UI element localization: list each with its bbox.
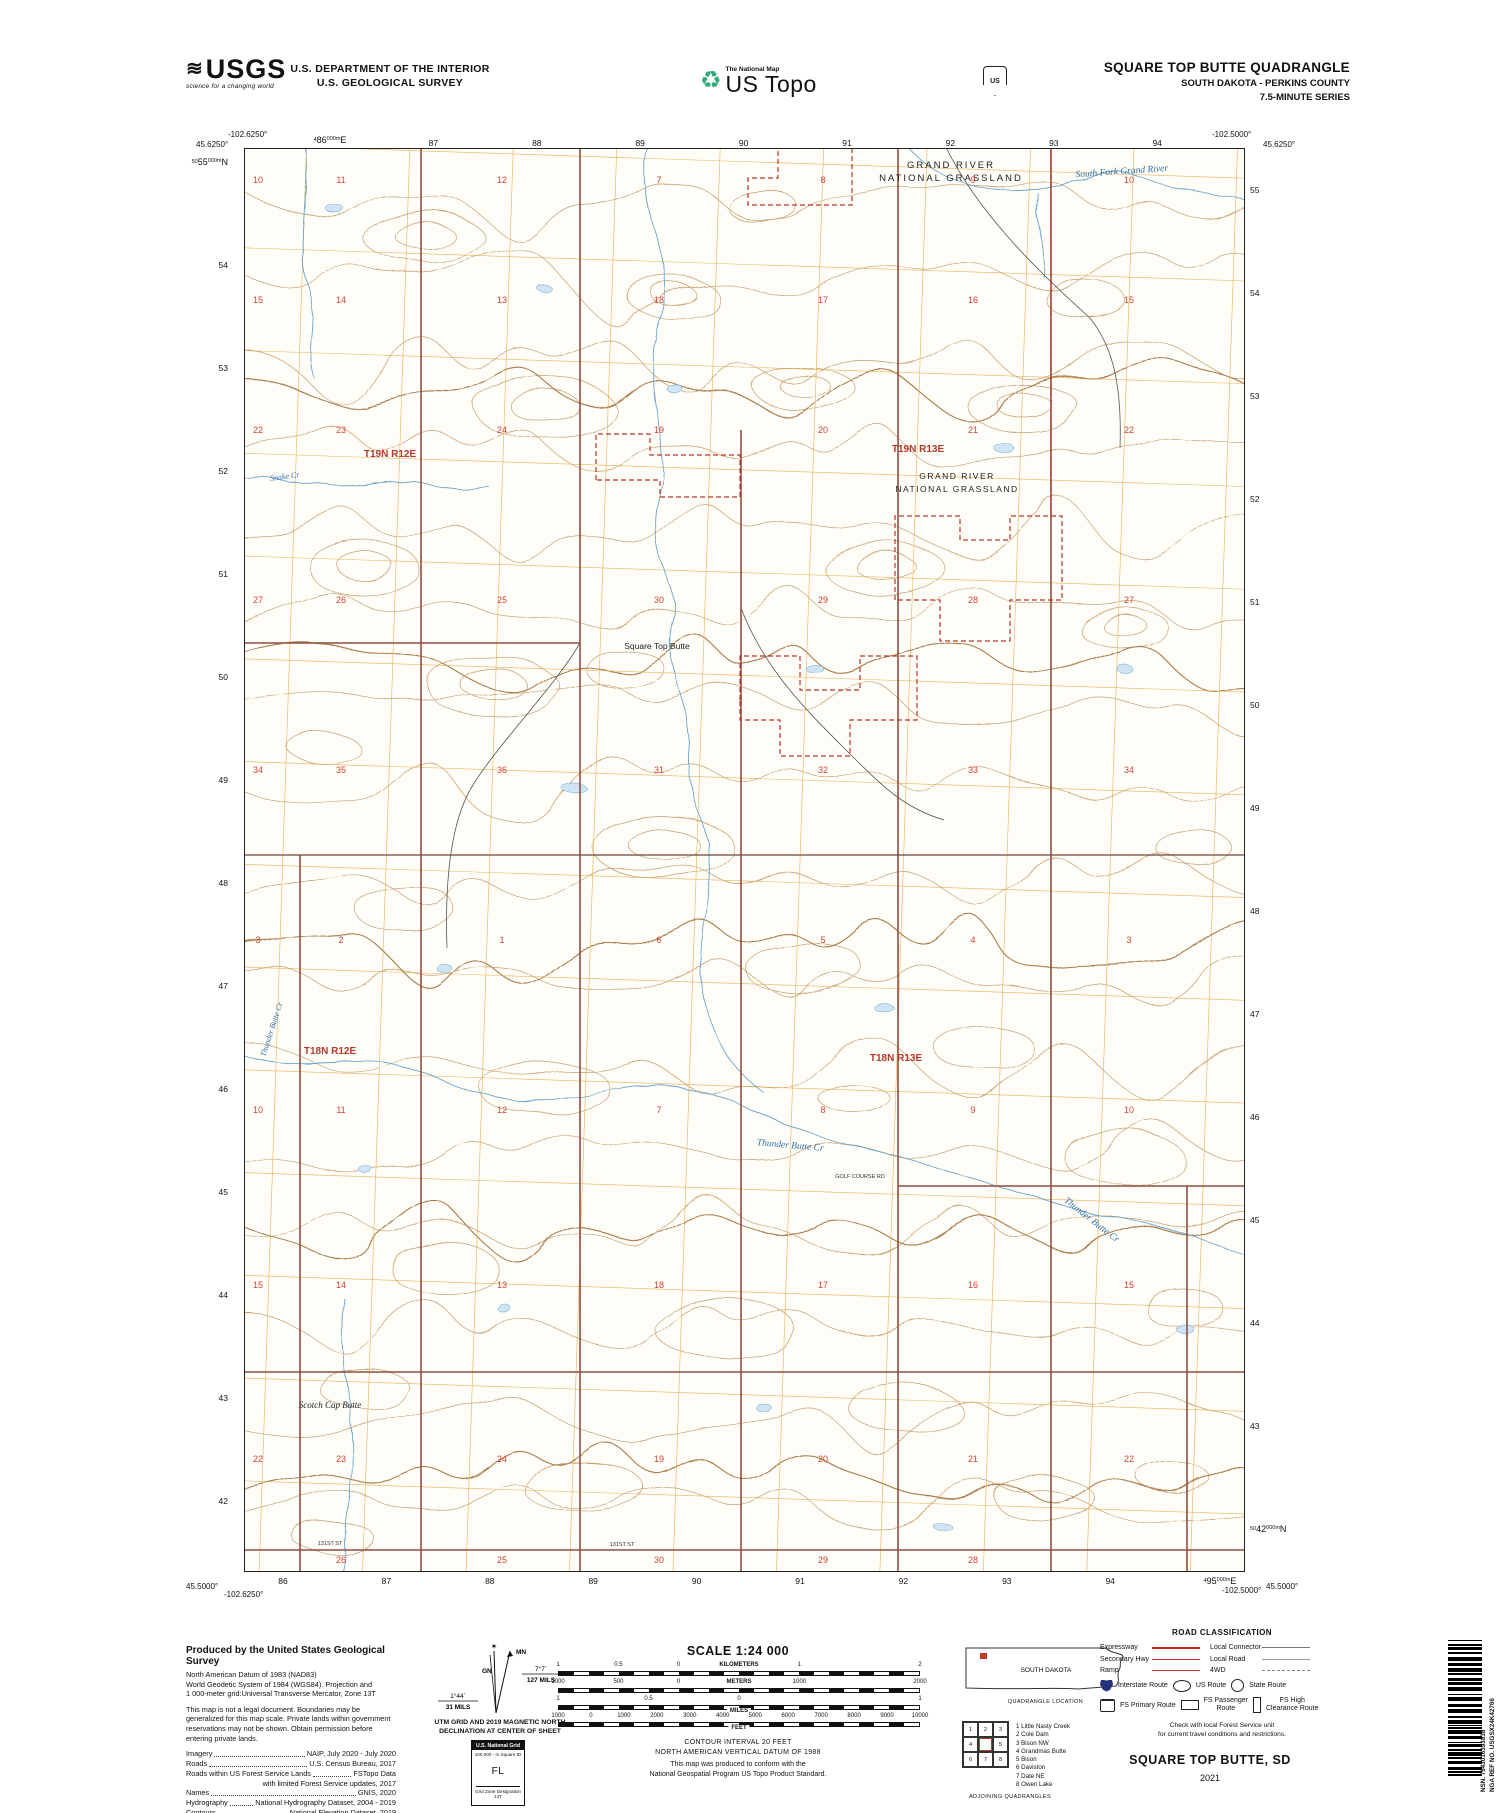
source-row: Roads within US Forest Service LandsFSTo… bbox=[186, 1769, 396, 1779]
quad-location-marker bbox=[980, 1653, 987, 1659]
scotch-cap-butte-label: Scotch Cap Butte bbox=[299, 1400, 362, 1410]
grid-label: 91 bbox=[795, 1576, 804, 1586]
grid-label: 47 bbox=[219, 981, 228, 991]
scale-bar-miles: 10.501MILES bbox=[558, 1696, 920, 1713]
secondary-hwy-line-sample bbox=[1152, 1659, 1200, 1660]
grid-label: 93 bbox=[1002, 1576, 1011, 1586]
usng-square-id: FL bbox=[472, 1766, 524, 1777]
grid-label: 45 bbox=[219, 1187, 228, 1197]
nga-ref-number: NGA REF NO. USGSX24K42766 bbox=[1489, 1698, 1496, 1792]
fs-high-clearance-icon bbox=[1253, 1697, 1261, 1713]
grid-label: 48 bbox=[219, 878, 228, 888]
adjoining-quad-name: 6 Daviston bbox=[1016, 1764, 1070, 1772]
quadrangle-title: SQUARE TOP BUTTE QUADRANGLE bbox=[1000, 60, 1350, 75]
adjoining-quad-name: 5 Bison bbox=[1016, 1756, 1070, 1764]
grid-label: 54 bbox=[1250, 288, 1259, 298]
legend-row-fs-routes: FS Primary Route FS PassengerRoute FS Hi… bbox=[1100, 1697, 1344, 1713]
usgs-wave-icon: ≋ bbox=[186, 59, 203, 79]
ramp-label: Ramp bbox=[1100, 1667, 1152, 1674]
street-131-label-a: 131ST ST bbox=[318, 1541, 343, 1547]
nsn-number: NSN. 7643016393838 bbox=[1480, 1730, 1487, 1792]
local-connector-line-sample bbox=[1262, 1647, 1310, 1648]
road-classification: ROAD CLASSIFICATION Expressway Local Con… bbox=[1100, 1628, 1344, 1739]
usgs-logo: ≋ USGS science for a changing world bbox=[186, 56, 306, 90]
adjoining-quad-name: 8 Owen Lake bbox=[1016, 1781, 1070, 1789]
vertical-datum-line: NORTH AMERICAN VERTICAL DATUM OF 1988 bbox=[588, 1748, 888, 1758]
grid-label: 53 bbox=[219, 363, 228, 373]
quadrangle-subtitle: SOUTH DAKOTA - PERKINS COUNTY bbox=[1000, 78, 1350, 89]
agency-line1: U.S. DEPARTMENT OF THE INTERIOR bbox=[290, 62, 490, 76]
map-background bbox=[244, 148, 1245, 1572]
adjoining-cell: 2 bbox=[978, 1722, 993, 1737]
grassland-mid-label-2: NATIONAL GRASSLAND bbox=[895, 484, 1018, 494]
grid-label: 90 bbox=[739, 138, 748, 148]
grassland-mid-label-1: GRAND RIVER bbox=[919, 471, 995, 481]
ramp-line-sample bbox=[1152, 1670, 1200, 1671]
fs-passenger-route-label: FS PassengerRoute bbox=[1204, 1697, 1248, 1713]
source-row: with limited Forest Service updates, 201… bbox=[186, 1779, 396, 1789]
fs-note-line-2: for current travel conditions and restri… bbox=[1100, 1731, 1344, 1740]
grid-label-486000mE: 486000mE bbox=[314, 135, 347, 145]
usng-title: U.S. National Grid bbox=[472, 1741, 524, 1750]
map-canvas: GRAND RIVER NATIONAL GRASSLAND T19N R12E… bbox=[244, 148, 1245, 1572]
legal-line: generalized for this map scale. Private … bbox=[186, 1714, 396, 1724]
adjoining-quad-name: 2 Cole Dam bbox=[1016, 1731, 1070, 1739]
grid-label-5042000mN: 5042000mN bbox=[1250, 1524, 1286, 1534]
grid-label: 93 bbox=[1049, 138, 1058, 148]
state-route-label: State Route bbox=[1249, 1682, 1286, 1689]
state-name: SOUTH DAKOTA bbox=[1021, 1667, 1072, 1674]
adjoining-quad-name: 3 Bison NW bbox=[1016, 1740, 1070, 1748]
grid-label: 46 bbox=[219, 1084, 228, 1094]
grid-label: 48 bbox=[1250, 906, 1259, 916]
quadrangle-series: 7.5-MINUTE SERIES bbox=[1000, 92, 1350, 103]
adjoining-cell: 6 bbox=[963, 1752, 978, 1767]
grid-label: 90 bbox=[692, 1576, 701, 1586]
corner-top-right-lat: 45.6250° bbox=[1263, 140, 1295, 149]
corner-bottom-right-lat: 45.5000° bbox=[1266, 1582, 1298, 1591]
datum-line: World Geodetic System of 1984 (WGS84). P… bbox=[186, 1680, 396, 1690]
national-map-icon: ♻ bbox=[700, 69, 722, 93]
township-t18n-r13e: T18N R13E bbox=[870, 1053, 923, 1064]
grid-label: 46 bbox=[1250, 1112, 1259, 1122]
gn-mils: 31 MILS bbox=[446, 1704, 471, 1711]
local-connector-label: Local Connector bbox=[1210, 1644, 1262, 1651]
township-t18n-r12e: T18N R12E bbox=[304, 1046, 357, 1057]
grid-label: 45 bbox=[1250, 1215, 1259, 1225]
grassland-top-label-2: NATIONAL GRASSLAND bbox=[879, 173, 1023, 184]
corner-top-right-lon: -102.5000° bbox=[1212, 130, 1251, 139]
adjoining-quad-name: 1 Little Nasty Creek bbox=[1016, 1723, 1070, 1731]
legal-line: This map is not a legal document. Bounda… bbox=[186, 1705, 396, 1715]
usgs-topo-sheet: ≋ USGS science for a changing world U.S.… bbox=[0, 0, 1500, 1813]
legend-row-ramp: Ramp 4WD bbox=[1100, 1667, 1344, 1674]
grid-label: 44 bbox=[219, 1290, 228, 1300]
declination-diagram: ✶ MN GN 7°7´ 127 MILS 1°44´ 31 MILS bbox=[430, 1641, 570, 1721]
interstate-route-label: Interstate Route bbox=[1118, 1682, 1168, 1689]
grid-label: 87 bbox=[429, 138, 438, 148]
usng-square-id-label: 100,000 - m Square ID bbox=[472, 1752, 524, 1757]
grid-label: 52 bbox=[1250, 494, 1259, 504]
scale-title: SCALE 1:24 000 bbox=[588, 1644, 888, 1658]
township-t19n-r13e: T19N R13E bbox=[892, 444, 945, 455]
usng-zone: 13T bbox=[472, 1794, 524, 1799]
usng-box: U.S. National Grid 100,000 - m Square ID… bbox=[471, 1740, 525, 1806]
adjoining-quads-caption: ADJOINING QUADRANGLES bbox=[930, 1794, 1090, 1800]
contour-interval-line: CONTOUR INTERVAL 20 FEET bbox=[588, 1738, 888, 1748]
corner-bottom-right-lon: -102.5000° bbox=[1222, 1586, 1261, 1595]
grid-label: 47 bbox=[1250, 1009, 1259, 1019]
scale-bar-kilometers: 10.5012KILOMETERS bbox=[558, 1662, 920, 1679]
adjoining-cell: 4 bbox=[963, 1737, 978, 1752]
scale-bar-feet: 1000010002000300040005000600070008000900… bbox=[558, 1713, 920, 1730]
datum-line: North American Datum of 1983 (NAD83) bbox=[186, 1670, 396, 1680]
grid-label: 50 bbox=[1250, 700, 1259, 710]
conformance-line-1: This map was produced to conform with th… bbox=[568, 1760, 908, 1770]
source-row: ContoursNational Elevation Dataset, 2019 bbox=[186, 1808, 396, 1813]
legend-row-shields: Interstate Route US Route State Route bbox=[1100, 1679, 1344, 1692]
expressway-label: Expressway bbox=[1100, 1644, 1152, 1651]
grid-label: 89 bbox=[635, 138, 644, 148]
grid-label: 86 bbox=[278, 1576, 287, 1586]
contour-interval-caption: CONTOUR INTERVAL 20 FEET NORTH AMERICAN … bbox=[588, 1738, 888, 1757]
datum-lines: North American Datum of 1983 (NAD83)Worl… bbox=[186, 1670, 396, 1699]
gn-label: GN bbox=[482, 1668, 492, 1675]
fs-primary-route-icon bbox=[1100, 1699, 1115, 1712]
sheet-year: 2021 bbox=[1080, 1773, 1340, 1783]
adjoining-cell: 1 bbox=[963, 1722, 978, 1737]
grassland-top-label-1: GRAND RIVER bbox=[907, 160, 995, 171]
golf-course-rd-label: GOLF COURSE RD bbox=[835, 1174, 885, 1180]
barcode bbox=[1448, 1640, 1482, 1780]
adjoining-cell: 5 bbox=[993, 1737, 1008, 1752]
grid-label: 55 bbox=[1250, 185, 1259, 195]
secondary-hwy-label: Secondary Hwy bbox=[1100, 1656, 1152, 1663]
local-road-label: Local Road bbox=[1210, 1656, 1262, 1663]
fs-note-line-1: Check with local Forest Service unit bbox=[1100, 1722, 1344, 1731]
sheet-title: SQUARE TOP BUTTE, SD bbox=[1080, 1753, 1340, 1767]
fs-passenger-route-icon bbox=[1181, 1700, 1199, 1710]
usgs-logo-text: USGS bbox=[206, 56, 287, 82]
us-route-shield-icon bbox=[1173, 1680, 1191, 1692]
grid-label: 42 bbox=[219, 1496, 228, 1506]
grid-label: 53 bbox=[1250, 391, 1259, 401]
street-131-label-b: 131ST ST bbox=[610, 1542, 635, 1548]
conformance-line-2: National Geospatial Program US Topo Prod… bbox=[568, 1770, 908, 1780]
conformance-caption: This map was produced to conform with th… bbox=[568, 1760, 908, 1779]
source-row: ImageryNAIP, July 2020 - July 2020 bbox=[186, 1749, 396, 1759]
agency-line2: U.S. GEOLOGICAL SURVEY bbox=[290, 76, 490, 90]
data-sources: ImageryNAIP, July 2020 - July 2020RoadsU… bbox=[186, 1749, 396, 1813]
fourwd-label: 4WD bbox=[1210, 1667, 1262, 1674]
grid-label: 49 bbox=[219, 775, 228, 785]
corner-top-left-lat: 45.6250° bbox=[196, 140, 228, 149]
grid-label: 52 bbox=[219, 466, 228, 476]
adjoining-cell: 8 bbox=[993, 1752, 1008, 1767]
adjoining-quad-name: 7 Date NE bbox=[1016, 1773, 1070, 1781]
production-notes: Produced by the United States Geological… bbox=[186, 1645, 396, 1813]
mn-degrees: 7°7´ bbox=[535, 1665, 547, 1673]
grid-label: 51 bbox=[1250, 597, 1259, 607]
legal-line: entering private lands. bbox=[186, 1734, 396, 1744]
grid-label: 88 bbox=[532, 138, 541, 148]
grid-label: 51 bbox=[219, 569, 228, 579]
adjoining-quad-name: 4 Grandmas Butte bbox=[1016, 1748, 1070, 1756]
agency-block: U.S. DEPARTMENT OF THE INTERIOR U.S. GEO… bbox=[290, 62, 490, 90]
grid-label: 94 bbox=[1105, 1576, 1114, 1586]
ustopo-label: US Topo bbox=[726, 73, 817, 95]
grid-label: 87 bbox=[382, 1576, 391, 1586]
township-t19n-r12e: T19N R12E bbox=[364, 449, 417, 460]
grid-label: 43 bbox=[219, 1393, 228, 1403]
source-row: RoadsU.S. Census Bureau, 2017 bbox=[186, 1759, 396, 1769]
corner-top-left-lon: -102.6250° bbox=[228, 130, 267, 139]
adjoining-quads-list: 1 Little Nasty Creek2 Cole Dam3 Bison NW… bbox=[1016, 1723, 1070, 1789]
scale-bars: 10.5012KILOMETERS1000500010002000METERS1… bbox=[558, 1662, 920, 1734]
grid-label: 89 bbox=[588, 1576, 597, 1586]
source-row: HydrographyNational Hydrography Dataset,… bbox=[186, 1798, 396, 1808]
corner-bottom-left-lat: 45.5000° bbox=[186, 1582, 218, 1591]
grid-label: 54 bbox=[219, 260, 228, 270]
local-road-line-sample bbox=[1262, 1659, 1310, 1660]
road-classification-header: ROAD CLASSIFICATION bbox=[1100, 1628, 1344, 1637]
usng-zone-label: Grid Zone Designation bbox=[472, 1789, 524, 1794]
square-top-butte-label: Square Top Butte bbox=[624, 641, 690, 651]
grid-label: 92 bbox=[946, 138, 955, 148]
adjoining-quads-grid: 12345678 bbox=[962, 1721, 1009, 1768]
datum-line: 1 000-meter grid:Universal Transverse Me… bbox=[186, 1689, 396, 1699]
fourwd-line-sample bbox=[1262, 1670, 1310, 1671]
adjoining-cell: 3 bbox=[993, 1722, 1008, 1737]
legend-row-expressway: Expressway Local Connector bbox=[1100, 1644, 1344, 1651]
grid-label: 43 bbox=[1250, 1421, 1259, 1431]
grid-label: 50 bbox=[219, 672, 228, 682]
adjoining-cell: 7 bbox=[978, 1752, 993, 1767]
mn-label: MN bbox=[516, 1649, 526, 1656]
produced-by-title: Produced by the United States Geological… bbox=[186, 1645, 396, 1667]
fs-high-clearance-label: FS HighClearance Route bbox=[1266, 1697, 1319, 1713]
interstate-shield-icon bbox=[1100, 1680, 1113, 1692]
grid-label: 91 bbox=[842, 138, 851, 148]
grid-label: 88 bbox=[485, 1576, 494, 1586]
expressway-line-sample bbox=[1152, 1647, 1200, 1649]
us-route-label: US Route bbox=[1196, 1682, 1226, 1689]
grid-label-495000mE: 495000mE bbox=[1204, 1576, 1237, 1586]
state-route-circle-icon bbox=[1231, 1679, 1244, 1692]
scale-bar-meters: 1000500010002000METERS bbox=[558, 1679, 920, 1696]
grid-label: 49 bbox=[1250, 803, 1259, 813]
source-row: NamesGNIS, 2020 bbox=[186, 1788, 396, 1798]
fs-primary-route-label: FS Primary Route bbox=[1120, 1702, 1176, 1709]
ustopo-logo: ♻ The National Map US Topo bbox=[700, 66, 817, 95]
grid-label: 92 bbox=[899, 1576, 908, 1586]
north-star-icon: ✶ bbox=[491, 1642, 498, 1651]
title-block: SQUARE TOP BUTTE QUADRANGLE SOUTH DAKOTA… bbox=[1000, 60, 1350, 103]
adjoining-cell bbox=[978, 1737, 993, 1752]
grid-label: 44 bbox=[1250, 1318, 1259, 1328]
legal-line: reservations may not be shown. Obtain pe… bbox=[186, 1724, 396, 1734]
grid-label: 94 bbox=[1152, 138, 1161, 148]
corner-bottom-left-lon: -102.6250° bbox=[224, 1590, 263, 1599]
legal-lines: This map is not a legal document. Bounda… bbox=[186, 1705, 396, 1743]
forest-service-note: Check with local Forest Service unit for… bbox=[1100, 1722, 1344, 1739]
grid-label-5055000mN: 5055000mN bbox=[192, 157, 228, 167]
gn-degrees: 1°44´ bbox=[450, 1692, 466, 1700]
usgs-tagline: science for a changing world bbox=[186, 83, 306, 90]
legend-row-secondary: Secondary Hwy Local Road bbox=[1100, 1656, 1344, 1663]
